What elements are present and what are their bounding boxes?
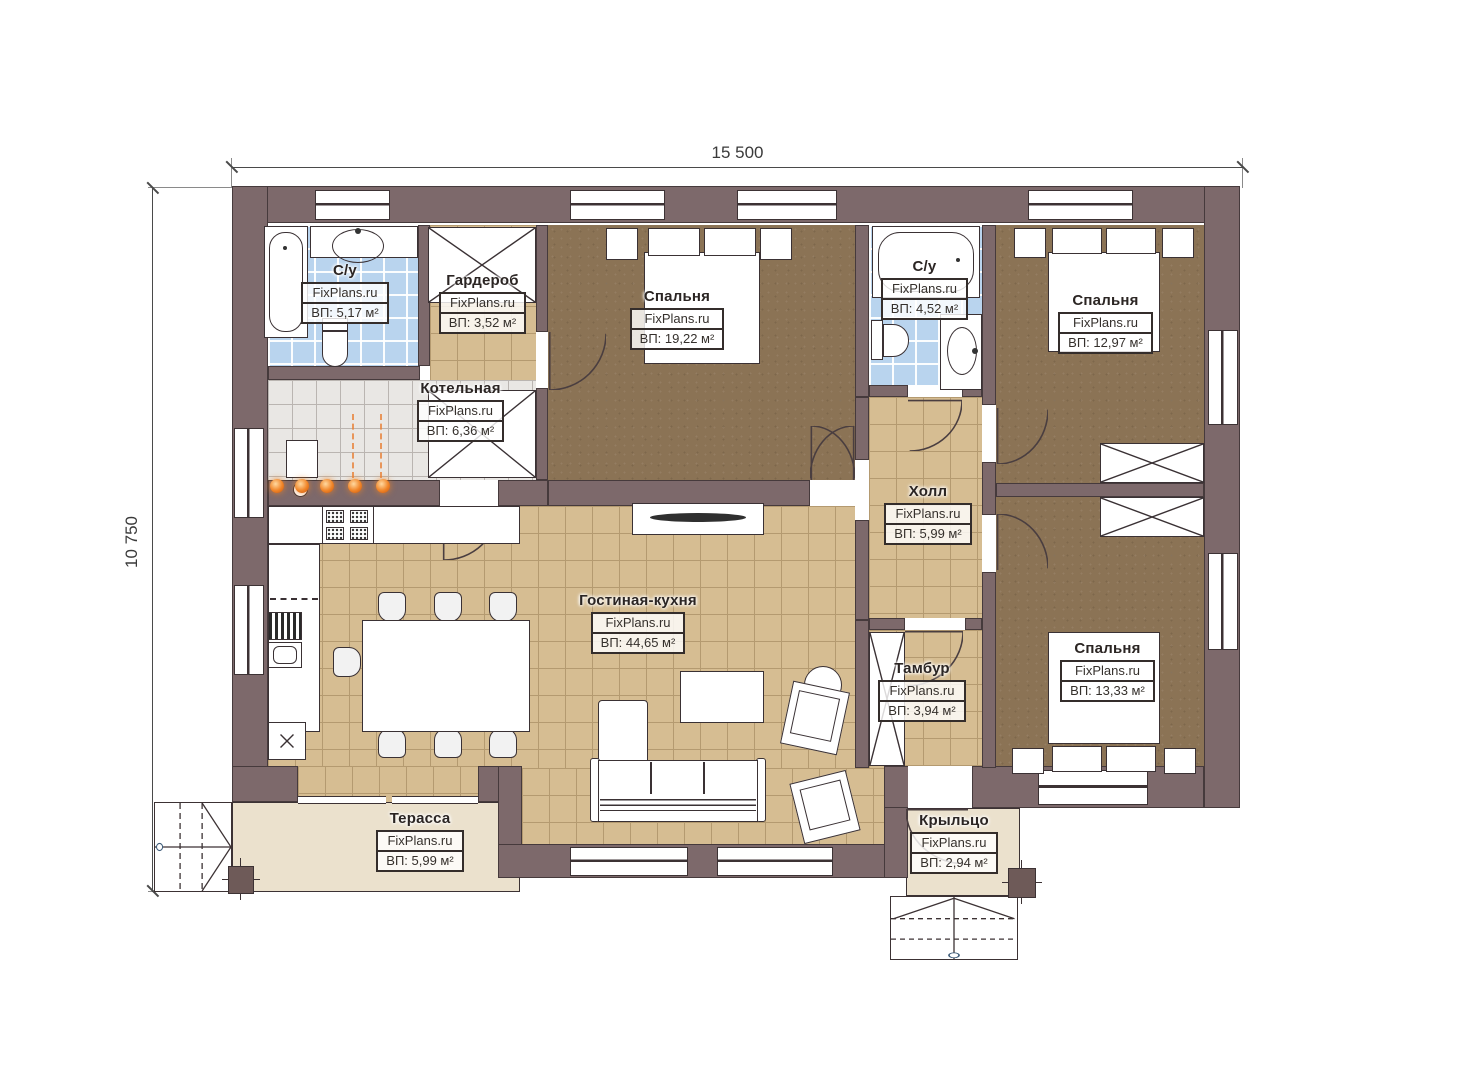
room-name: Спальня [607,288,747,305]
window [1028,190,1133,220]
extension-line [148,187,232,188]
doorway-opening [810,480,855,506]
terrace-door-threshold [298,796,386,804]
room-name: Крыльцо [895,812,1013,829]
closet-icon [1100,497,1204,537]
pillow [1106,746,1156,772]
cabinet-icon [268,722,306,760]
dimension-line-top [232,167,1243,168]
wall [232,766,298,802]
wall-interior [996,483,1204,497]
watermark: FixPlans.ru [419,402,502,422]
room-label-porch: Крыльцо FixPlans.ru ВП: 2,94 м² [895,812,1013,874]
wall-interior [855,225,869,397]
pendant-lamp-icon [320,479,334,493]
room-area: ВП: 5,99 м² [886,525,969,543]
dining-chair [434,592,462,622]
room-name: Спальня [1040,640,1175,657]
dimension-height-label: 10 750 [122,495,142,590]
toilet-tank [871,320,883,360]
dining-chair [333,647,361,677]
room-label-bedroom-1: Спальня FixPlans.ru ВП: 19,22 м² [607,288,747,350]
nightstand [606,228,638,260]
doorway-opening [908,766,972,808]
window [234,585,264,675]
wall-interior [982,572,996,768]
extension-line [1242,158,1243,188]
window [315,190,390,220]
room-area: ВП: 3,52 м² [441,314,524,332]
nightstand [760,228,792,260]
dining-chair [489,592,517,622]
sofa-backrest-lines [600,795,756,813]
doorway-opening [982,515,996,572]
kitchen-counter-top [268,506,520,544]
room-label-living-kitchen: Гостиная-кухня FixPlans.ru ВП: 44,65 м² [548,592,728,654]
pendant-lamp-icon [270,479,284,493]
counter-divider [270,598,318,600]
kitchen-sink-basin [273,646,297,664]
gas-line [352,414,354,478]
room-label-vestibule: Тамбур FixPlans.ru ВП: 3,94 м² [872,660,972,722]
room-area: ВП: 12,97 м² [1060,334,1151,352]
watermark: FixPlans.ru [880,682,963,702]
doorway-opening [855,460,869,520]
room-label-wardrobe: Гардероб FixPlans.ru ВП: 3,52 м² [425,272,540,334]
watermark: FixPlans.ru [912,834,995,854]
floor-plan: 15 500 10 750 [0,0,1473,1080]
doorway-opening [536,332,548,388]
nightstand [1014,228,1046,258]
pillow [1052,746,1102,772]
armchair-cushion [790,690,840,742]
window [717,847,833,876]
fridge [268,612,302,640]
window [1208,330,1238,425]
room-label-boiler: Котельная FixPlans.ru ВП: 6,36 м² [398,380,523,442]
room-name: С/у [872,258,977,275]
cooktop-burner [326,510,344,523]
window [737,190,837,220]
room-area: ВП: 6,36 м² [419,422,502,440]
extension-line [231,158,232,188]
room-area: ВП: 44,65 м² [593,634,684,652]
nightstand [1164,748,1196,774]
pendant-lamp-icon [348,479,362,493]
wall-interior [982,225,996,405]
coffee-table [680,671,764,723]
wall [1204,186,1240,808]
window [570,190,665,220]
room-label-bathroom-2: С/у FixPlans.ru ВП: 4,52 м² [872,258,977,320]
wall-interior [536,388,548,480]
window [1208,553,1238,650]
pillow [704,228,756,256]
sink-basin [332,229,384,263]
watermark: FixPlans.ru [1060,314,1151,334]
pillow [648,228,700,256]
room-area: ВП: 5,99 м² [378,852,461,870]
wall-interior [965,618,982,630]
tv [650,513,746,522]
room-area: ВП: 13,33 м² [1062,682,1153,700]
column [228,866,254,894]
room-area: ВП: 2,94 м² [912,854,995,872]
sofa-cushion-divider [650,762,652,794]
room-name: Гардероб [425,272,540,289]
boiler-unit [286,440,318,478]
wall-interior [855,620,869,768]
wall-interior [869,385,908,397]
sofa-cushion-divider [703,762,705,794]
pillow [1052,228,1102,254]
gas-line [380,414,382,478]
watermark: FixPlans.ru [1062,662,1153,682]
window [570,847,688,876]
wall-interior [869,618,905,630]
bathtub-drain [283,246,287,250]
window [234,428,264,518]
room-name: Терасса [355,810,485,827]
wall-interior [855,397,869,460]
wall [498,844,908,878]
dining-chair [434,728,462,758]
doorway-opening [440,480,498,506]
room-label-bathroom-1: С/у FixPlans.ru ВП: 5,17 м² [295,262,395,324]
wall-interior [855,520,869,620]
watermark: FixPlans.ru [303,284,386,304]
closet-icon [1100,443,1204,483]
room-name: С/у [295,262,395,279]
watermark: FixPlans.ru [632,310,723,330]
pendant-lamp-icon [295,479,309,493]
door-arc [548,332,606,390]
wall-interior [982,462,996,515]
room-name: Холл [878,483,978,500]
dining-table [362,620,530,732]
dimension-line-left [152,188,153,892]
watermark: FixPlans.ru [378,832,461,852]
room-area: ВП: 4,52 м² [883,300,966,318]
room-label-bedroom-2: Спальня FixPlans.ru ВП: 12,97 м² [1038,292,1173,354]
pillow [1106,228,1156,254]
watermark: FixPlans.ru [886,505,969,525]
nightstand [1012,748,1044,774]
toilet-bowl [322,331,348,367]
terrace-door-threshold [392,796,478,804]
pendant-lamp-icon [376,479,390,493]
door-arc [908,399,962,451]
room-label-terrace: Терасса FixPlans.ru ВП: 5,99 м² [355,810,485,872]
room-name: Спальня [1038,292,1173,309]
room-name: Тамбур [872,660,972,677]
door-arc [996,408,1048,464]
wall-interior [268,366,420,380]
sink-faucet [355,228,361,234]
room-name: Гостиная-кухня [548,592,728,609]
nightstand [1162,228,1194,258]
dining-chair [489,728,517,758]
room-area: ВП: 3,94 м² [880,702,963,720]
wall-interior [498,480,548,506]
watermark: FixPlans.ru [593,614,684,634]
terrace-steps [154,802,232,892]
dining-chair [378,592,406,622]
wall [884,766,910,808]
room-label-bedroom-3: Спальня FixPlans.ru ВП: 13,33 м² [1040,640,1175,702]
window [1038,770,1148,805]
porch-steps [890,896,1018,960]
room-label-hall: Холл FixPlans.ru ВП: 5,99 м² [878,483,978,545]
dimension-width-label: 15 500 [655,143,820,163]
sink-faucet [972,348,978,354]
room-area: ВП: 5,17 м² [303,304,386,322]
cooktop-burner [350,527,368,540]
dining-chair [378,728,406,758]
room-area: ВП: 19,22 м² [632,330,723,348]
doorway-opening [905,618,965,630]
watermark: FixPlans.ru [441,294,524,314]
watermark: FixPlans.ru [883,280,966,300]
door-arc [810,426,855,480]
cooktop-burner [326,527,344,540]
cooktop-burner [350,510,368,523]
door-arc [996,514,1048,570]
room-name: Котельная [398,380,523,397]
doorway-opening [982,405,996,462]
